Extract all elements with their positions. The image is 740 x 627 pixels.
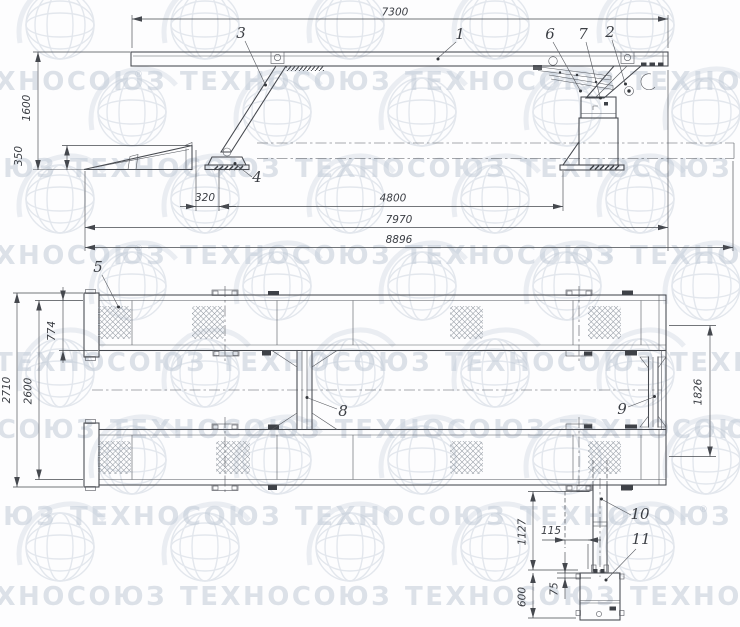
watermark-registered-icon: ® bbox=[134, 244, 143, 254]
drawing-page: ТЕХНОСОЮЗ ТЕХНОСОЮЗ ТЕХНОСОЮЗ ТЕХНОСОЮЗ … bbox=[0, 0, 740, 627]
watermark-text: ТЕХНОСОЮЗ bbox=[0, 154, 57, 184]
dim-text: 1826 bbox=[693, 378, 705, 405]
watermark-text: ТЕХНОСОЮЗ bbox=[0, 348, 207, 378]
technical-drawing: ТЕХНОСОЮЗ ТЕХНОСОЮЗ ТЕХНОСОЮЗ ТЕХНОСОЮЗ … bbox=[0, 0, 740, 627]
dim-text: 115 bbox=[541, 525, 561, 537]
anti-slip-patch bbox=[98, 306, 131, 339]
dim-text: 75 bbox=[549, 582, 561, 596]
part-number: 3 bbox=[236, 24, 246, 42]
anti-slip-patch bbox=[216, 441, 250, 474]
anti-slip-patch bbox=[192, 306, 224, 339]
watermark-text: ТЕХНОСОЮЗ bbox=[220, 348, 432, 378]
dim-text: 774 bbox=[46, 321, 58, 341]
dim-text: 7300 bbox=[382, 7, 409, 19]
dim-text: 1600 bbox=[21, 94, 33, 121]
anti-slip-patch bbox=[450, 441, 483, 474]
watermark-text-layer: ТЕХНОСОЮЗ ТЕХНОСОЮЗ ТЕХНОСОЮЗ ТЕХНОСОЮЗ … bbox=[0, 67, 740, 612]
dim-text: 2710 bbox=[1, 376, 13, 403]
part-label-1: 1 bbox=[437, 25, 465, 61]
part-number: 1 bbox=[455, 25, 465, 43]
watermark-text: ТЕХНОСОЮЗ bbox=[0, 415, 97, 445]
watermark-text: ТЕХНОСОЮЗ bbox=[70, 502, 282, 532]
dim-text: 7970 bbox=[386, 214, 413, 226]
watermark-text: ТЕХНОСОЮЗ bbox=[0, 502, 57, 532]
dim-text: 350 bbox=[13, 146, 25, 166]
watermark-text: ТЕХНОСОЮЗ bbox=[630, 582, 740, 612]
dim-text: 1127 bbox=[517, 518, 529, 545]
globe-watermark-icon bbox=[19, 0, 104, 59]
hinge-bracket bbox=[271, 52, 284, 64]
globe-watermark-icon bbox=[454, 0, 539, 59]
part-number: 6 bbox=[545, 25, 555, 43]
watermark-text: ТЕХНОСОЮЗ bbox=[670, 348, 740, 378]
watermark-text: ТЕХНОСОЮЗ bbox=[295, 502, 507, 532]
watermark-text: ТЕХНОСОЮЗ bbox=[405, 241, 617, 271]
watermark-text: ТЕХНОСОЮЗ bbox=[405, 67, 617, 97]
anti-slip-patch bbox=[588, 306, 621, 339]
dim-text: 4800 bbox=[380, 193, 407, 205]
watermark-registered-icon: ® bbox=[699, 505, 708, 515]
part-number: 2 bbox=[604, 23, 615, 41]
watermark-text: ТЕХНОСОЮЗ bbox=[0, 582, 167, 612]
part-number: 8 bbox=[338, 402, 348, 420]
watermark-text: ТЕХНОСОЮЗ bbox=[630, 241, 740, 271]
watermark-registered-icon: ® bbox=[134, 70, 143, 80]
weld-pad bbox=[286, 66, 324, 71]
part-number: 4 bbox=[251, 168, 262, 186]
part-number: 10 bbox=[630, 505, 650, 523]
part-number: 11 bbox=[631, 530, 650, 548]
part-number: 7 bbox=[578, 25, 588, 43]
watermark-text: ТЕХНОСОЮЗ bbox=[630, 67, 740, 97]
watermark-text: ТЕХНОСОЮЗ bbox=[180, 67, 392, 97]
pivot-hole bbox=[549, 57, 558, 66]
dim-text: 320 bbox=[195, 192, 215, 204]
dim-text: 2600 bbox=[23, 377, 35, 404]
watermark-text: ТЕХНОСОЮЗ bbox=[180, 582, 392, 612]
anti-slip-patch bbox=[450, 306, 483, 339]
part-number: 5 bbox=[93, 258, 103, 276]
part-number: 9 bbox=[617, 400, 627, 418]
dim-text: 600 bbox=[517, 587, 529, 607]
watermark-text: ТЕХНОСОЮЗ bbox=[180, 241, 392, 271]
watermark-text: ТЕХНОСОЮЗ bbox=[405, 582, 617, 612]
dim-text: 8896 bbox=[386, 234, 413, 246]
anti-slip-patch bbox=[98, 441, 131, 474]
